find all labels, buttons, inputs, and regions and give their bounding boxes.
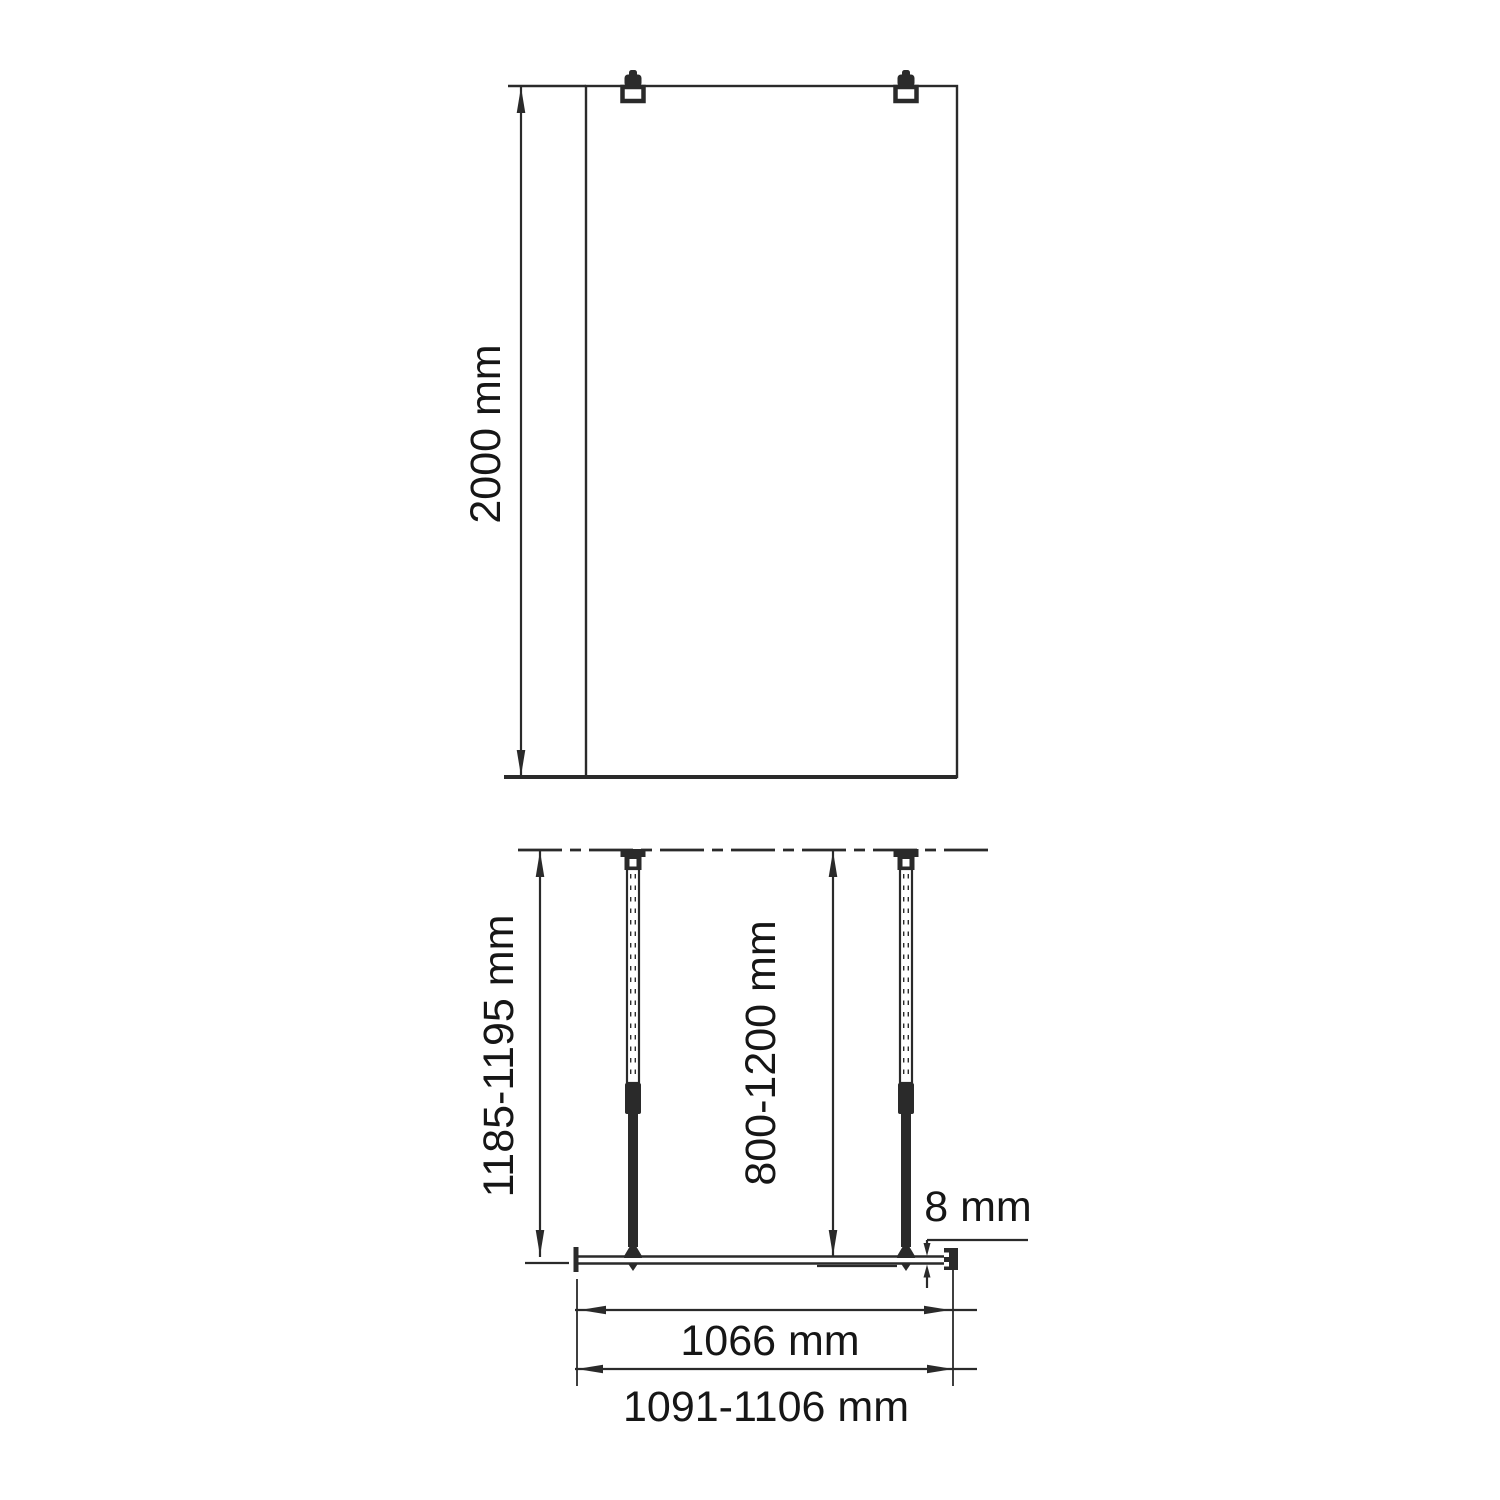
arrow-up [517, 87, 526, 113]
glass-clamp-left [623, 70, 644, 101]
tube-clamp-collar [898, 1083, 914, 1114]
glass-panel-front [586, 86, 957, 777]
flange-notch [630, 859, 637, 867]
wall-profile-bracket [944, 1248, 958, 1270]
arrow-left [580, 1306, 606, 1315]
profile-notch [944, 1253, 949, 1258]
depth-dimension-label: 1185-1195 mm [475, 915, 523, 1198]
wall-flange [894, 849, 919, 857]
arrow-right [924, 1306, 950, 1315]
wall-flange [621, 849, 646, 857]
arrow-up [536, 851, 545, 877]
arrow-right [927, 1365, 953, 1374]
glass-width-dimension: 1066 mm [575, 1306, 977, 1365]
bar-length-dimension: 800-1200 mm [737, 850, 897, 1266]
bar-rod [901, 1114, 911, 1247]
arrow-down [924, 1243, 931, 1256]
clamp-cap [625, 75, 642, 87]
front-view: 2000 mm [462, 70, 957, 777]
arrow-up [924, 1265, 931, 1278]
depth-dimension: 1185-1195 mm [475, 850, 569, 1263]
support-bar-right [894, 849, 919, 1271]
plan-view: 1185-1195 mm 800-1200 mm [475, 849, 1032, 1431]
glass-width-label: 1066 mm [680, 1317, 859, 1365]
flange-notch [903, 859, 910, 867]
profile-notch [944, 1262, 949, 1267]
total-width-dimension: 1091-1106 mm [575, 1365, 977, 1431]
glass-clamp-right [896, 70, 917, 101]
profile-body [944, 1248, 958, 1270]
thickness-dimension-label: 8 mm [924, 1183, 1032, 1231]
total-width-label: 1091-1106 mm [623, 1383, 909, 1431]
arrow-left [577, 1365, 603, 1374]
bar-length-dimension-label: 800-1200 mm [737, 920, 785, 1185]
drawing-svg: 2000 mm 1185-1195 mm [0, 0, 1500, 1500]
clamp-body [896, 87, 917, 101]
arrow-up [829, 851, 838, 877]
tube-clamp-collar [625, 1083, 641, 1114]
bar-rod [628, 1114, 638, 1247]
glass-core [578, 1258, 950, 1263]
height-dimension-label: 2000 mm [462, 344, 510, 523]
arrow-down [829, 1230, 838, 1256]
telescopic-tube [900, 869, 912, 1083]
telescopic-tube [627, 869, 639, 1083]
arrow-down [517, 750, 526, 776]
arrow-down [536, 1230, 545, 1256]
support-bar-left [621, 849, 646, 1271]
clamp-body [623, 87, 644, 101]
glass-end-cap [574, 1247, 579, 1272]
clamp-cap [898, 75, 915, 87]
technical-drawing-shower-screen: 2000 mm 1185-1195 mm [0, 0, 1500, 1500]
thickness-dimension: 8 mm [924, 1183, 1032, 1288]
